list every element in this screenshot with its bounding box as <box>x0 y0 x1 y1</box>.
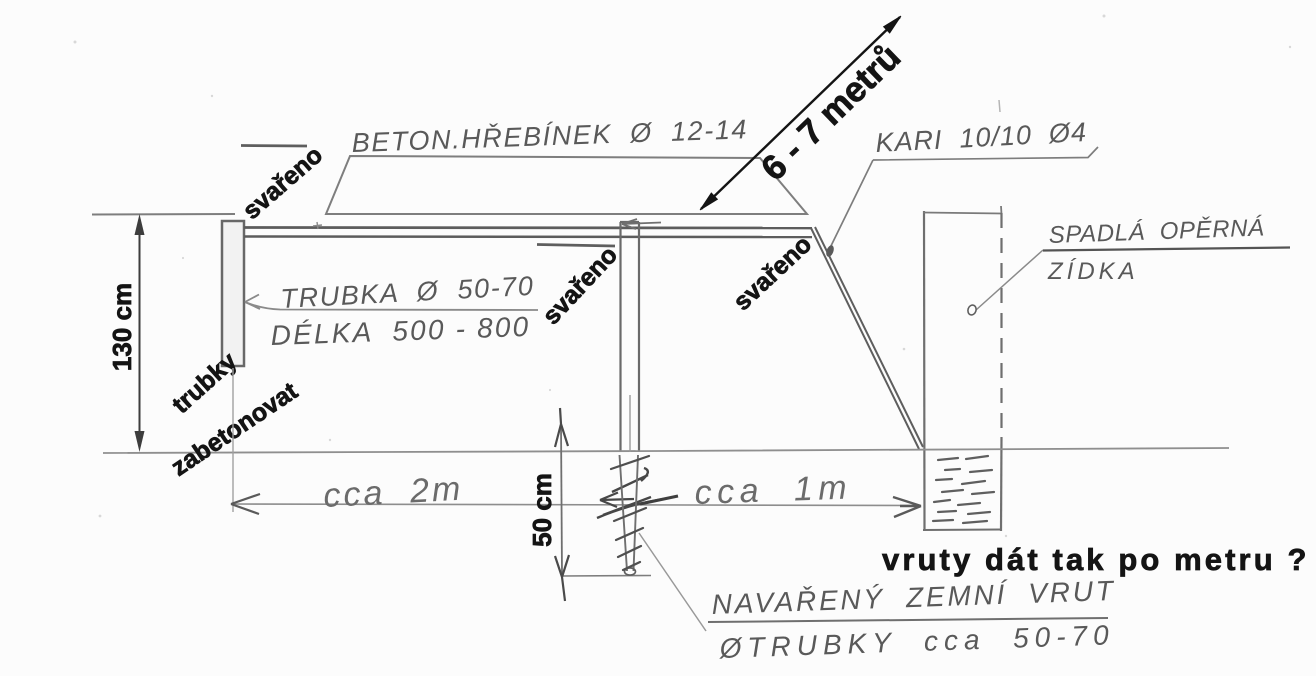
svg-text:cca 2m: cca 2m <box>322 470 464 515</box>
svg-text:vruty dát tak po metru ?: vruty dát tak po metru ? <box>882 542 1310 577</box>
svg-text:cca 1m: cca 1m <box>694 469 853 512</box>
svg-text:130 cm: 130 cm <box>107 283 137 371</box>
svg-text:ZÍDKA: ZÍDKA <box>1047 258 1139 285</box>
svg-text:50 cm: 50 cm <box>527 473 557 547</box>
